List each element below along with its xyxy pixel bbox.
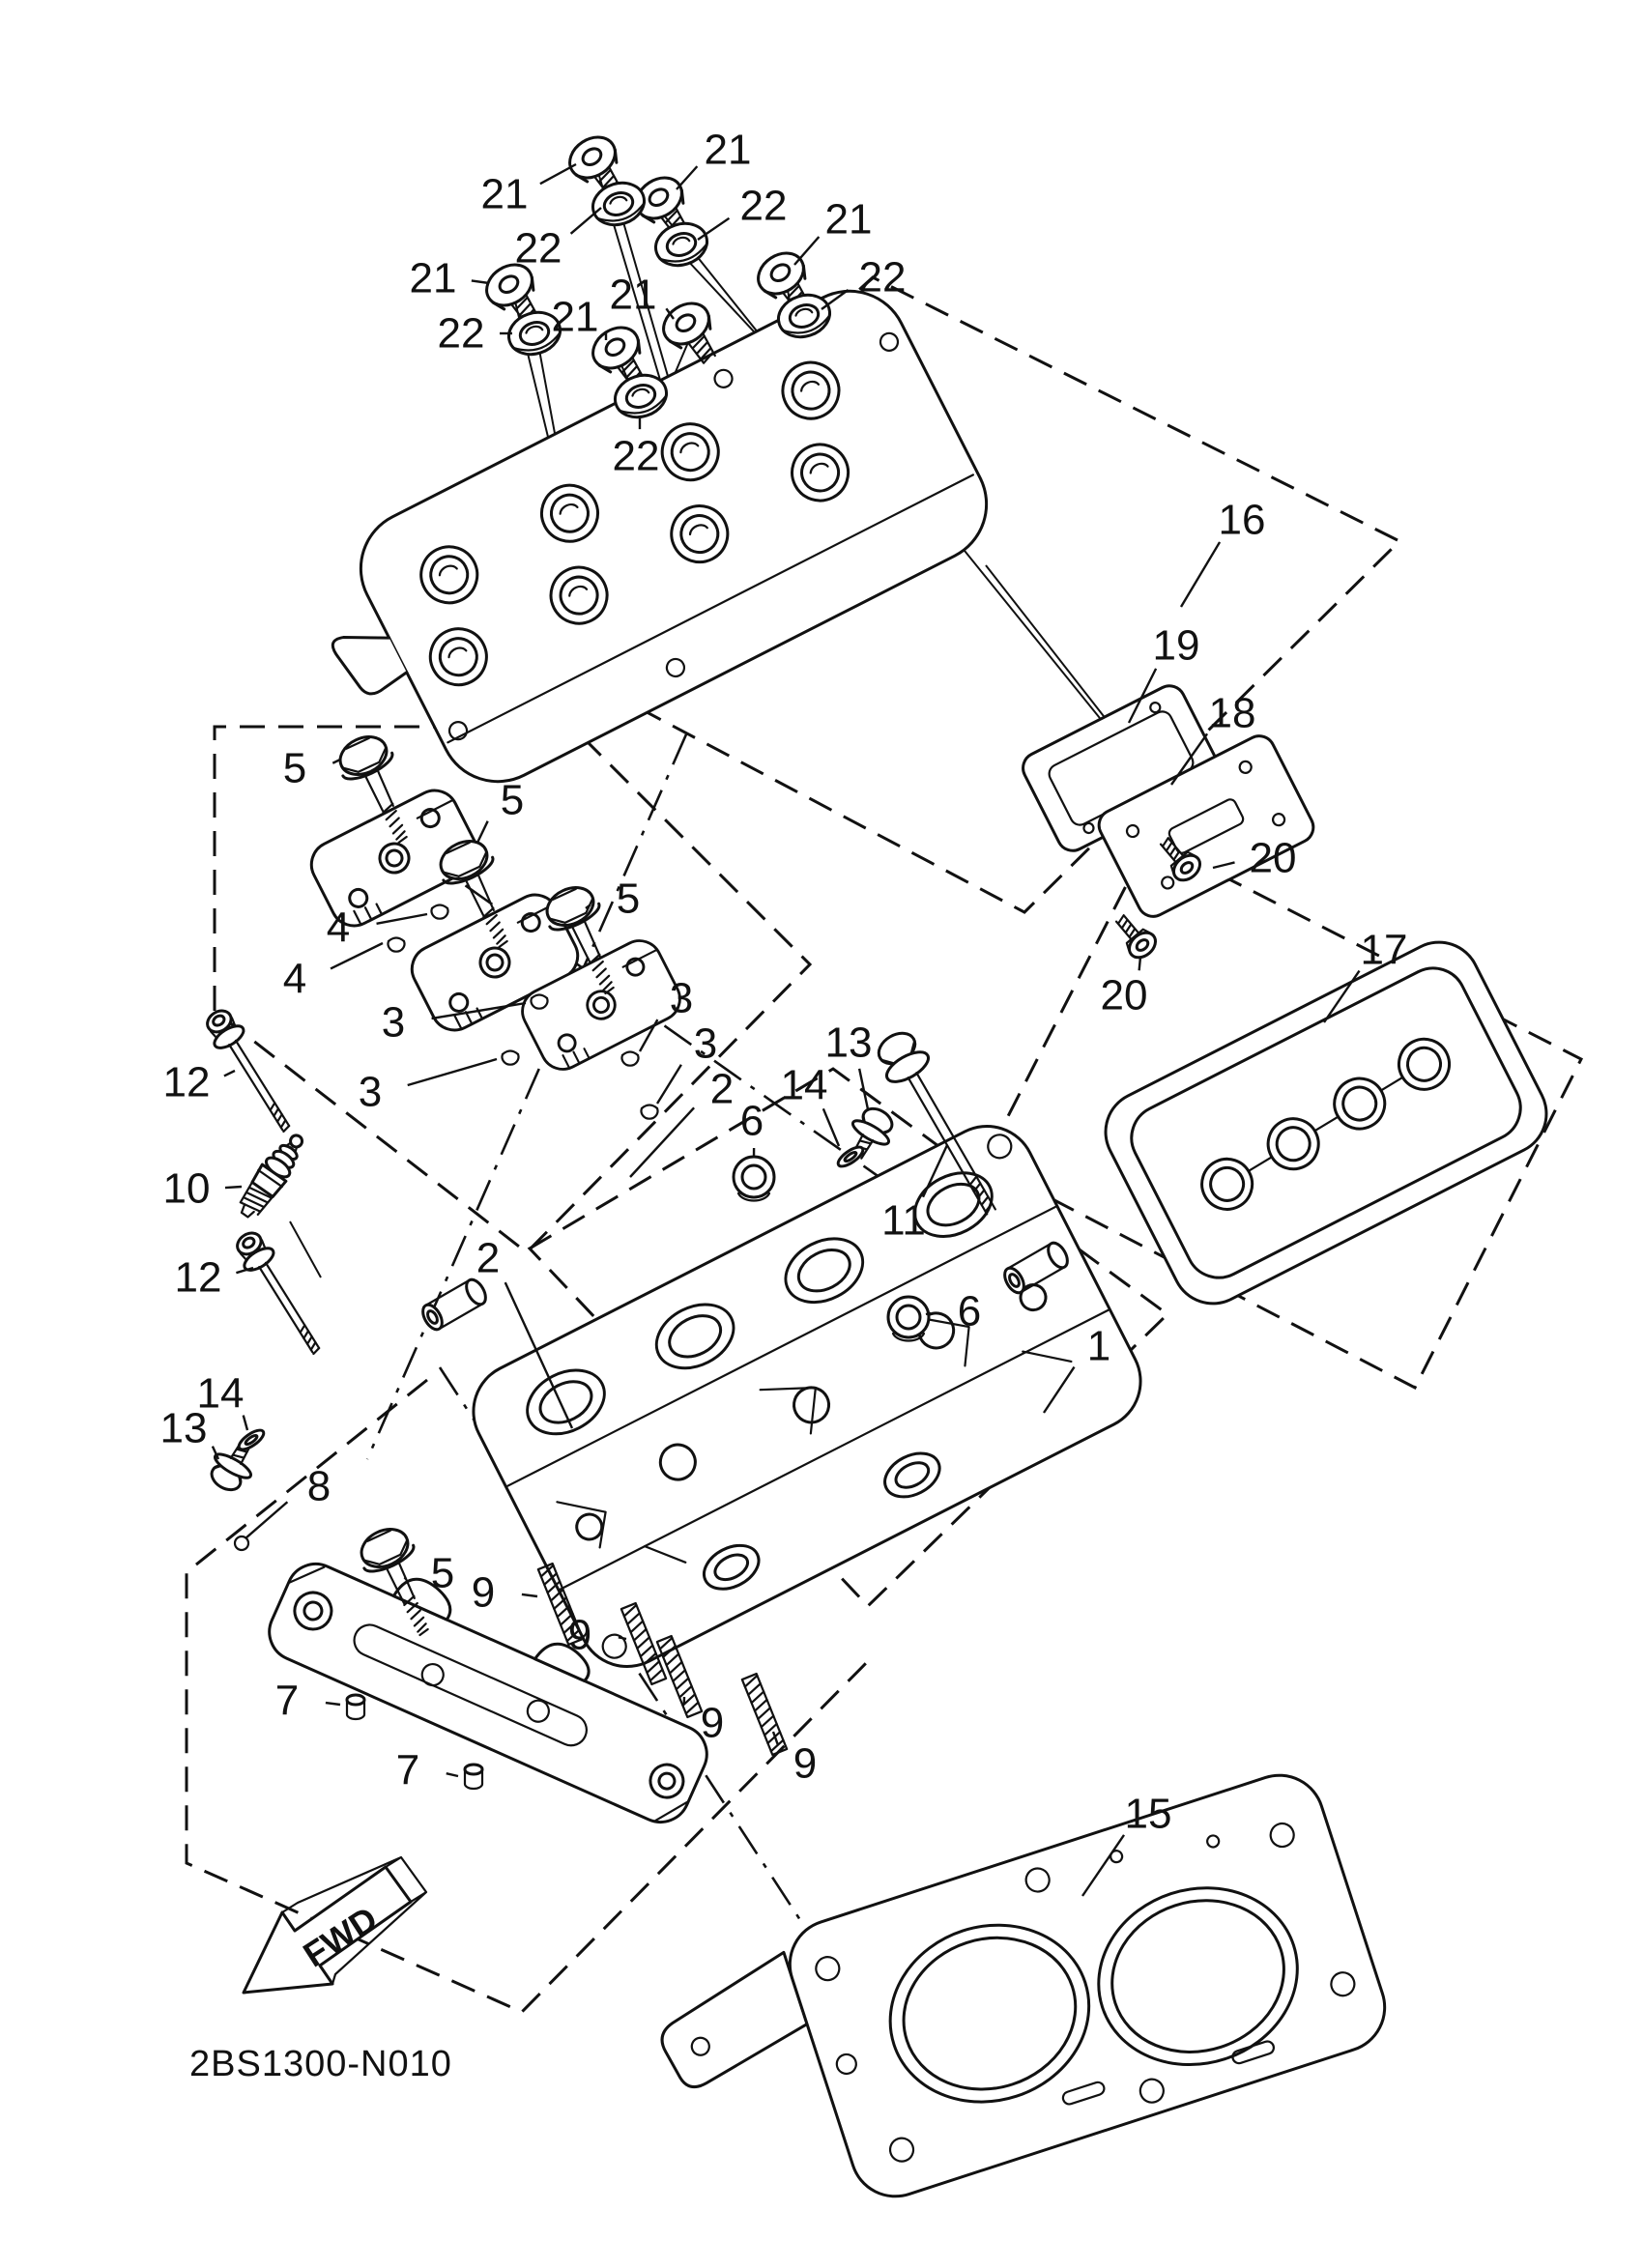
callout-label-22: 22 [438,310,485,358]
callout-label-13: 13 [825,1019,873,1067]
oil-plug-6 [888,1297,929,1341]
callout-leader-line [571,208,601,234]
callout-label-4: 4 [327,904,350,952]
parts-diagram-page: FWD 2BS1300-N010 21222122212221222121221… [0,0,1643,2268]
cylinder-head-cover [292,272,1006,827]
callout-leader-line [1181,542,1220,607]
callout-label-21: 21 [825,196,873,244]
cotter-3 [503,1051,519,1065]
callout-label-9: 9 [472,1569,495,1617]
callout-leader-line [630,1107,694,1177]
callout-label-22: 22 [515,225,562,273]
callout-label-18: 18 [1209,690,1256,737]
callout-label-7: 7 [275,1678,299,1725]
cylinder-head [457,1109,1158,1682]
dowel-4 [432,905,448,919]
dowel-4 [389,938,405,952]
seal-washer-14 [835,1143,865,1169]
callout-label-2: 2 [710,1066,734,1113]
callout-label-17: 17 [1361,927,1408,974]
oil-plug-6 [734,1157,774,1201]
callout-label-5: 5 [283,745,306,792]
callout-label-21: 21 [481,171,529,218]
callout-label-21: 21 [705,127,752,174]
stud-bolt-12 [200,1004,301,1137]
spark-plug-10 [233,1128,311,1222]
callout-label-22: 22 [613,433,660,480]
callout-leader-line [794,237,819,265]
callout-label-3: 3 [670,975,693,1022]
callout-label-8: 8 [307,1463,331,1510]
cover-washer-22 [588,177,649,232]
callout-leader-line [225,1187,242,1188]
callout-label-6: 6 [958,1288,981,1335]
callout-leader-line [377,914,427,924]
callout-label-21: 21 [410,255,457,302]
callout-label-2: 2 [476,1235,500,1282]
fwd-arrow-icon: FWD [244,1857,426,1993]
stud-bolt-12 [230,1226,331,1360]
cotter-3 [622,1052,639,1066]
callout-leader-line [522,1594,537,1596]
callout-label-5: 5 [501,777,524,824]
callout-label-1: 1 [1087,1323,1110,1370]
callout-label-12: 12 [175,1254,222,1302]
callout-label-22: 22 [740,183,788,230]
dowel-pin-7 [465,1765,482,1789]
callout-leader-line [477,821,488,843]
cylinder-head-gasket-15 [642,1764,1397,2252]
callout-leader-line [472,280,489,283]
callout-label-5: 5 [617,876,640,923]
callout-label-13: 13 [160,1405,208,1452]
callout-leader-line [926,1313,931,1314]
callout-leader-line [404,1577,406,1579]
callout-label-7: 7 [396,1747,419,1794]
callout-label-9: 9 [793,1740,817,1788]
exploded-parts-diagram: FWD 2BS1300-N010 21222122212221222121221… [0,0,1643,2268]
stud-9 [742,1674,787,1755]
callout-label-21: 21 [552,294,599,341]
callout-label-20: 20 [1250,835,1297,882]
dowel-pin-7 [347,1695,364,1719]
head-cover-gasket-17 [1092,929,1561,1318]
callout-leader-line [408,1059,497,1085]
callout-label-14: 14 [781,1062,828,1109]
callout-leader-line [1139,957,1140,970]
part-code: 2BS1300-N010 [189,2044,452,2084]
callout-label-12: 12 [163,1059,211,1106]
callout-label-9: 9 [568,1612,591,1659]
callout-leader-line [244,1416,247,1430]
callout-label-4: 4 [283,956,306,1003]
callout-leader-line [540,164,576,184]
callout-label-20: 20 [1101,972,1148,1019]
callout-label-19: 19 [1153,622,1200,670]
callout-leader-line [224,1071,235,1076]
callout-label-5: 5 [431,1550,454,1597]
callout-label-3: 3 [694,1020,717,1068]
callout-label-21: 21 [610,272,657,319]
cotter-3 [642,1105,658,1119]
callout-label-11: 11 [881,1197,926,1245]
callout-leader-line [447,1773,458,1776]
callout-label-22: 22 [859,254,907,301]
callout-label-3: 3 [359,1069,382,1116]
seal-washer-14 [236,1426,266,1452]
callout-label-15: 15 [1125,1791,1172,1838]
callout-label-9: 9 [701,1700,724,1747]
callout-leader-line [677,166,697,189]
callout-leader-line [619,1637,626,1639]
callout-label-3: 3 [382,999,405,1047]
callout-label-6: 6 [740,1098,764,1145]
callout-leader-line [326,1703,340,1705]
valve-guide-2 [419,1277,490,1333]
callout-label-16: 16 [1219,497,1266,544]
callout-label-10: 10 [163,1165,211,1213]
